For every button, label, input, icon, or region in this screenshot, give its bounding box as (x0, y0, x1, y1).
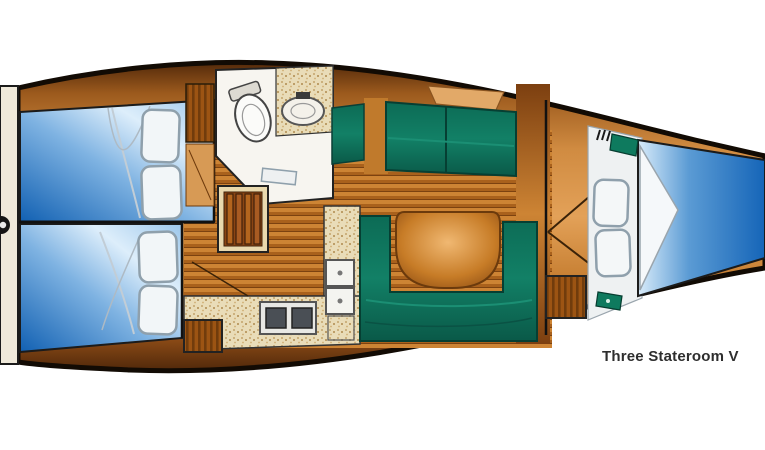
boat-floorplan-image: Three Stateroom V (0, 0, 765, 450)
nav-seat (332, 104, 364, 164)
stove (260, 302, 316, 334)
floorplan-caption: Three Stateroom V (602, 348, 739, 365)
transom-platform (0, 86, 18, 364)
hanging-locker (186, 84, 214, 206)
aft-stateroom-bottom (20, 224, 182, 352)
aft-stateroom-top (20, 100, 214, 222)
double-sink (326, 260, 354, 340)
companionway-steps (218, 186, 268, 252)
head-door (261, 168, 296, 184)
galley-louvered-locker (184, 320, 222, 352)
salon-table (396, 212, 500, 288)
boat-floorplan-svg (0, 0, 765, 450)
settee-gap-wood (364, 98, 388, 174)
forward-louvered-cabinet (546, 276, 586, 318)
